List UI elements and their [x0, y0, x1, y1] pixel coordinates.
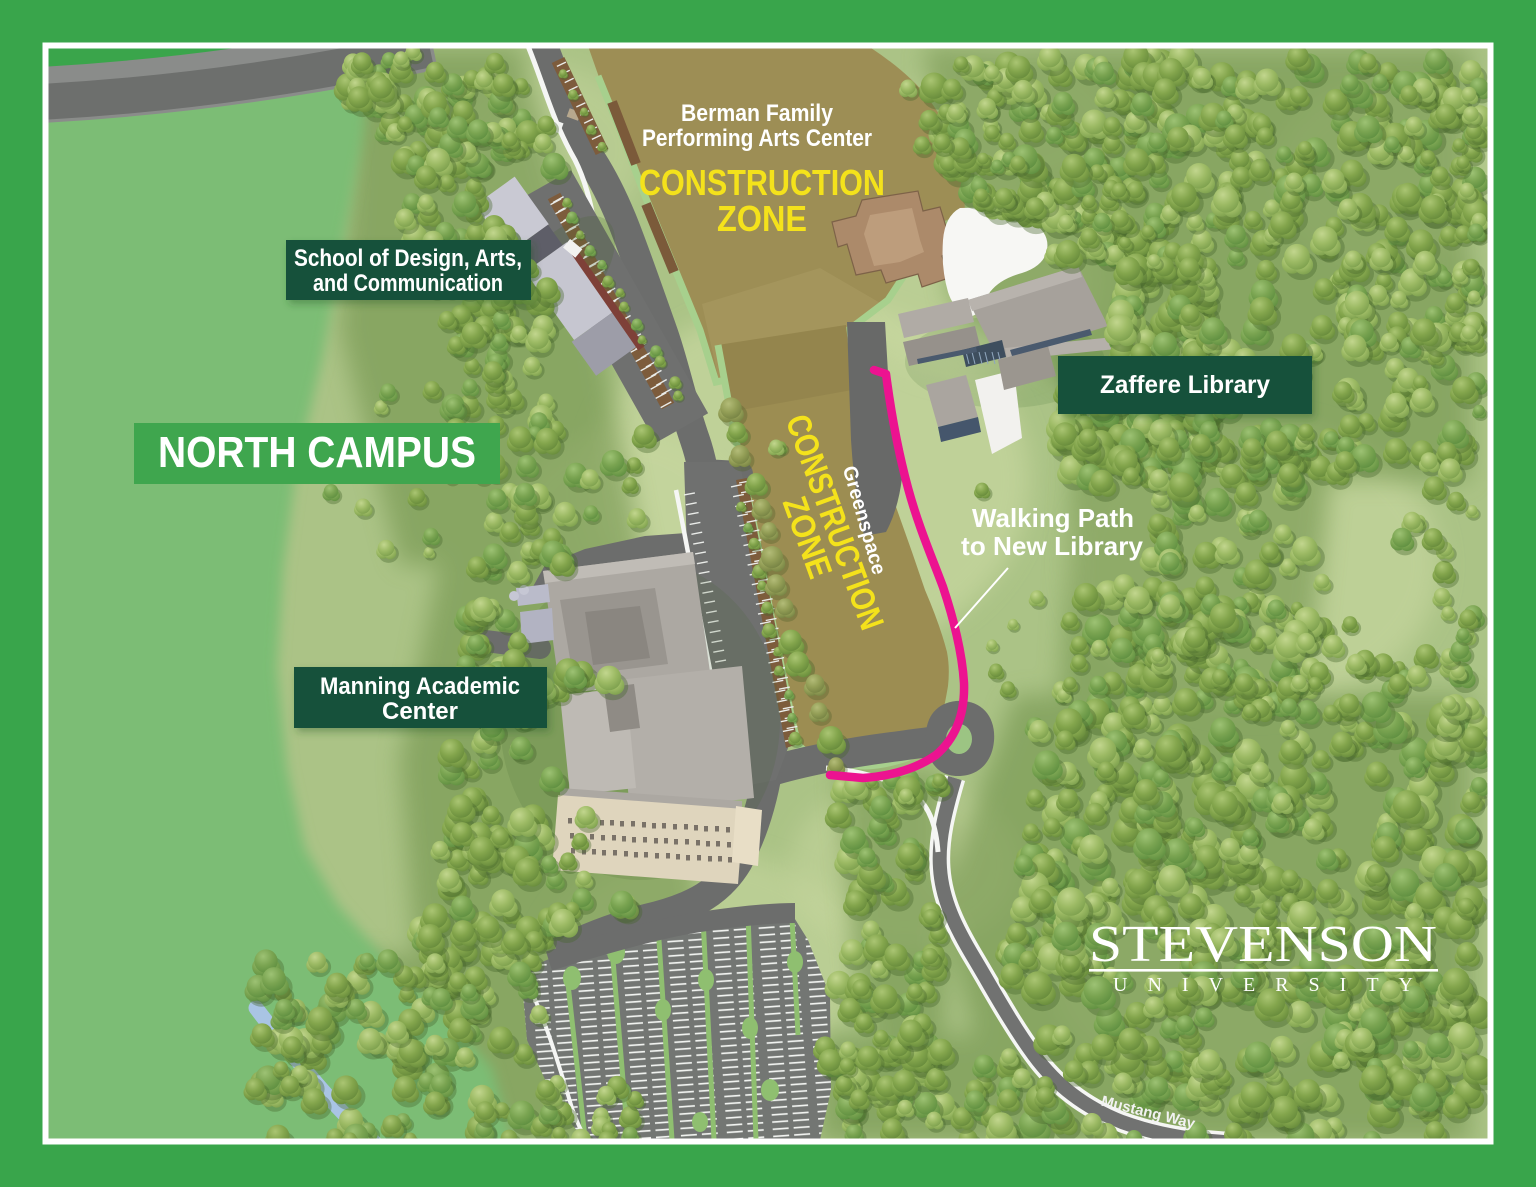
svg-text:Manning Academic: Manning Academic — [320, 673, 520, 700]
svg-text:School of Design, Arts,: School of Design, Arts, — [294, 245, 522, 272]
svg-text:Zaffere Library: Zaffere Library — [1100, 371, 1270, 399]
svg-text:and Communication: and Communication — [313, 270, 503, 297]
svg-text:Performing Arts Center: Performing Arts Center — [642, 125, 872, 152]
svg-text:Walking Path: Walking Path — [972, 503, 1134, 533]
svg-text:Berman Family: Berman Family — [681, 100, 834, 127]
svg-text:UNIVERSITY: UNIVERSITY — [1113, 974, 1433, 996]
svg-text:to New Library: to New Library — [961, 531, 1144, 561]
svg-text:CONSTRUCTION: CONSTRUCTION — [639, 162, 885, 203]
svg-text:NORTH CAMPUS: NORTH CAMPUS — [158, 428, 476, 477]
svg-text:Center: Center — [382, 698, 458, 725]
svg-text:ZONE: ZONE — [717, 198, 807, 239]
svg-text:STEVENSON: STEVENSON — [1089, 916, 1437, 973]
